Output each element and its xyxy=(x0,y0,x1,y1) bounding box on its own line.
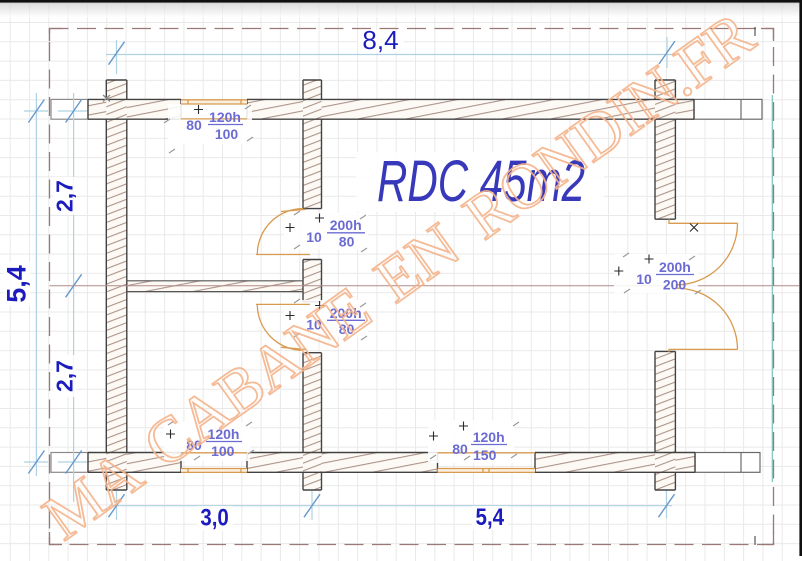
svg-text:120h: 120h xyxy=(209,109,241,125)
svg-text:150: 150 xyxy=(473,447,497,463)
svg-text:10: 10 xyxy=(306,229,322,245)
svg-text:200h: 200h xyxy=(330,217,362,233)
svg-text:3,0: 3,0 xyxy=(200,505,229,532)
svg-text:200h: 200h xyxy=(659,259,691,275)
svg-text:120h: 120h xyxy=(473,429,505,445)
svg-text:2,7: 2,7 xyxy=(52,360,78,392)
svg-text:8,4: 8,4 xyxy=(362,25,398,55)
svg-text:200: 200 xyxy=(663,277,687,293)
svg-text:80: 80 xyxy=(186,117,202,133)
svg-text:10: 10 xyxy=(636,271,652,287)
svg-text:2,7: 2,7 xyxy=(52,180,78,212)
svg-text:80: 80 xyxy=(339,234,355,250)
svg-text:5,4: 5,4 xyxy=(2,265,32,303)
svg-text:5,4: 5,4 xyxy=(476,504,505,531)
svg-text:100: 100 xyxy=(215,126,239,142)
svg-text:80: 80 xyxy=(452,441,468,457)
